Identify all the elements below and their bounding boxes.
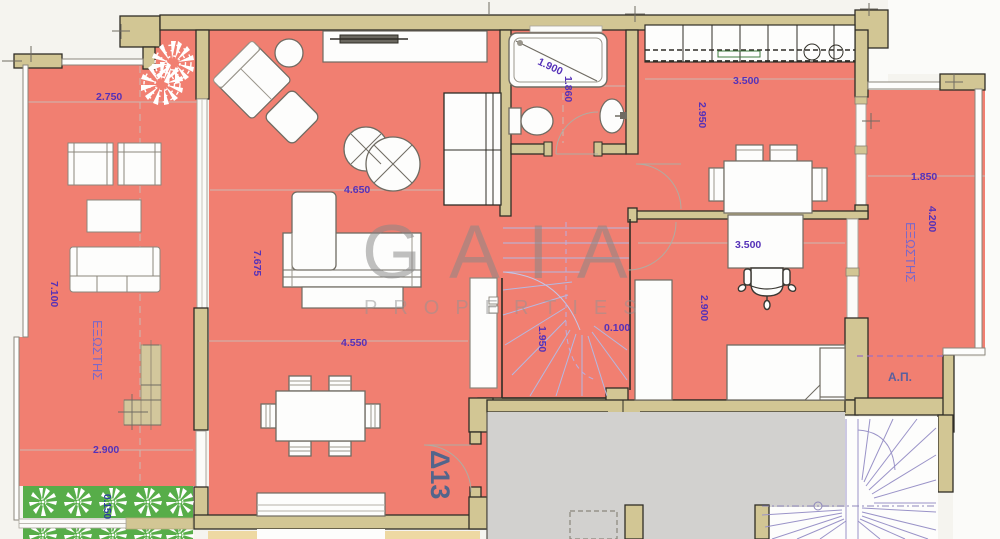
- svg-text:2.900: 2.900: [93, 444, 119, 456]
- svg-text:0.100: 0.100: [604, 322, 630, 334]
- svg-text:GAIA: GAIA: [362, 210, 656, 295]
- svg-text:Α.Π.: Α.Π.: [888, 370, 912, 384]
- svg-text:7.100: 7.100: [48, 281, 60, 307]
- svg-text:4.550: 4.550: [341, 337, 367, 349]
- svg-text:ΕΞΩΣΤΗΣ: ΕΞΩΣΤΗΣ: [90, 320, 105, 380]
- svg-text:2.900: 2.900: [698, 295, 710, 321]
- svg-text:2.950: 2.950: [696, 102, 708, 128]
- svg-text:4.200: 4.200: [926, 206, 938, 232]
- svg-text:3.500: 3.500: [735, 239, 761, 251]
- svg-text:0.150: 0.150: [101, 494, 112, 519]
- svg-text:1.860: 1.860: [562, 76, 574, 102]
- svg-text:PROPERTIES: PROPERTIES: [364, 297, 653, 319]
- svg-text:4.650: 4.650: [344, 184, 370, 196]
- svg-text:3.500: 3.500: [733, 75, 759, 87]
- svg-text:7.675: 7.675: [251, 250, 263, 276]
- svg-text:ΕΞΩΣΤΗΣ: ΕΞΩΣΤΗΣ: [903, 222, 918, 282]
- svg-text:Δ13: Δ13: [425, 450, 455, 499]
- svg-text:1.850: 1.850: [911, 171, 937, 183]
- svg-text:1.950: 1.950: [536, 326, 548, 352]
- svg-text:2.750: 2.750: [96, 91, 122, 103]
